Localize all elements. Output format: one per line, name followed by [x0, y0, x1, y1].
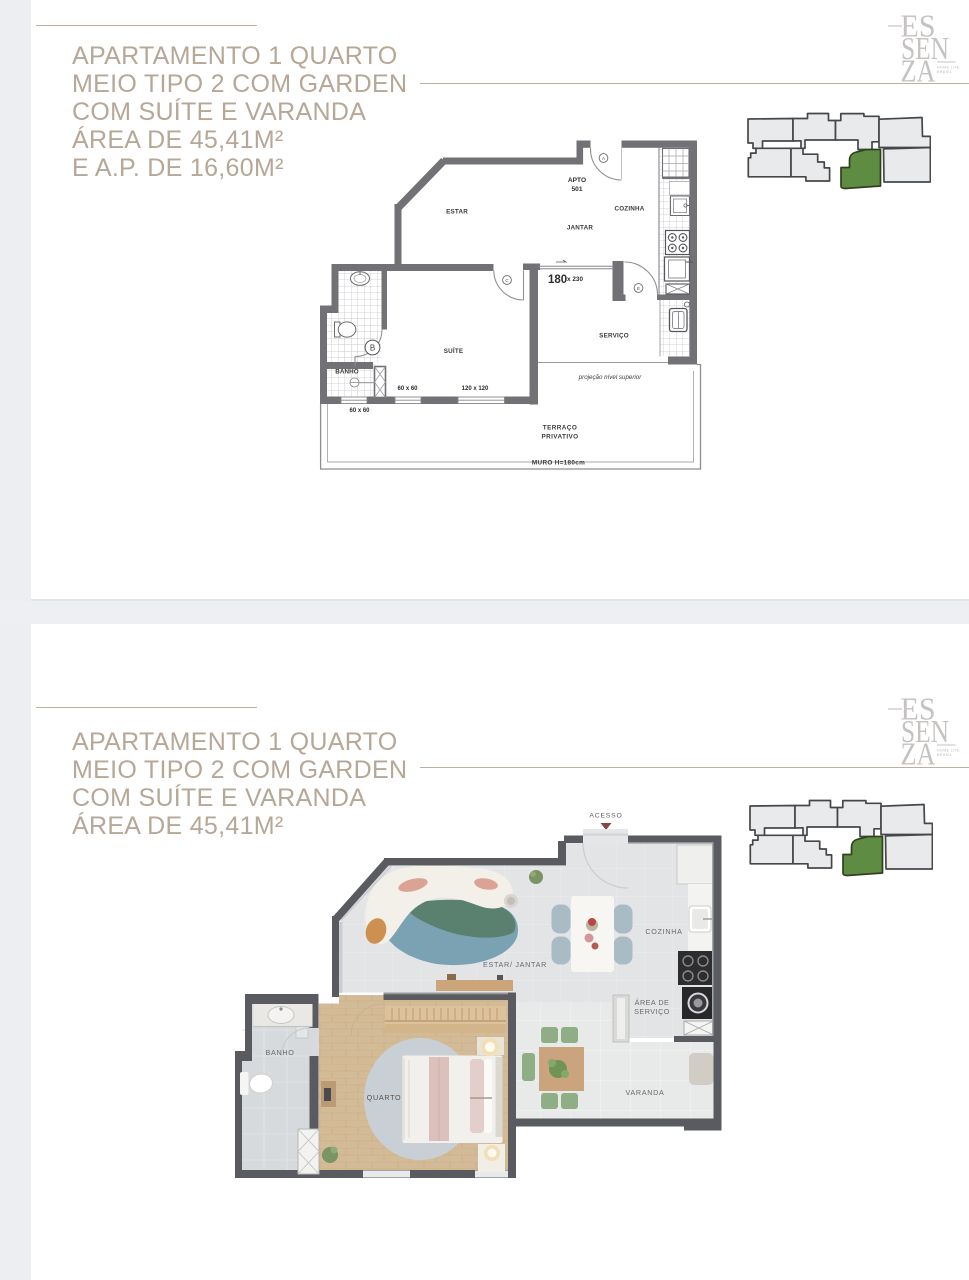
svg-text:JANTAR: JANTAR	[567, 225, 594, 232]
svg-text:VARANDA: VARANDA	[625, 1088, 664, 1097]
svg-text:SERVIÇO: SERVIÇO	[634, 1007, 670, 1016]
svg-text:ESTAR/ JANTAR: ESTAR/ JANTAR	[483, 960, 547, 969]
svg-text:x 230: x 230	[567, 276, 583, 283]
svg-text:A: A	[602, 156, 606, 161]
svg-text:BANHO: BANHO	[335, 369, 359, 376]
svg-text:60 x 60: 60 x 60	[397, 386, 418, 392]
svg-text:ESTAR: ESTAR	[446, 209, 468, 216]
svg-text:B: B	[370, 344, 375, 353]
svg-text:E: E	[637, 286, 640, 291]
svg-text:BANHO: BANHO	[265, 1048, 294, 1057]
svg-text:QUARTO: QUARTO	[367, 1093, 402, 1102]
svg-text:ZA: ZA	[901, 736, 936, 772]
svg-text:SUÍTE: SUÍTE	[444, 346, 464, 355]
svg-text:BRASIL: BRASIL	[937, 753, 952, 757]
svg-text:HOME LIFE: HOME LIFE	[937, 66, 960, 70]
svg-text:PRIVATIVO: PRIVATIVO	[541, 433, 578, 440]
svg-text:60 x 60: 60 x 60	[349, 408, 370, 414]
svg-text:120 x 120: 120 x 120	[462, 386, 489, 392]
svg-text:ÁREA DE: ÁREA DE	[635, 998, 670, 1007]
svg-text:ZA: ZA	[901, 53, 936, 89]
svg-text:COZINHA: COZINHA	[614, 206, 644, 213]
svg-text:501: 501	[571, 186, 582, 193]
svg-text:TERRAÇO: TERRAÇO	[543, 425, 577, 432]
svg-text:COZINHA: COZINHA	[645, 927, 682, 936]
svg-text:SERVIÇO: SERVIÇO	[599, 333, 629, 340]
svg-text:ACESSO: ACESSO	[589, 813, 622, 820]
svg-text:C: C	[505, 278, 509, 283]
svg-text:APTO: APTO	[568, 177, 586, 184]
svg-text:MURO H=180cm: MURO H=180cm	[532, 460, 585, 467]
svg-text:180: 180	[548, 274, 567, 286]
svg-text:projeção nível superior: projeção nível superior	[578, 374, 643, 381]
svg-text:BRASIL: BRASIL	[937, 70, 952, 74]
svg-text:HOME LIFE: HOME LIFE	[937, 749, 960, 753]
